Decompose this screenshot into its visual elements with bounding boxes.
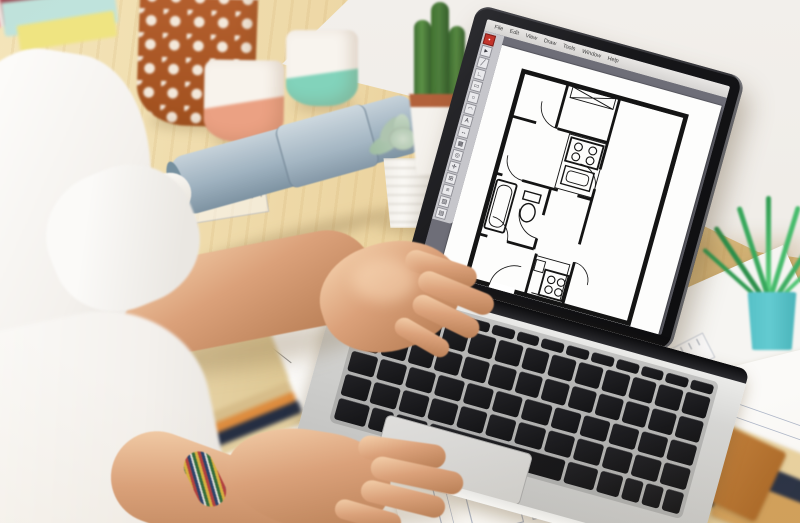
tool-glyph: ○ xyxy=(471,94,476,101)
keyboard-key xyxy=(521,347,551,375)
cactus-stem xyxy=(414,20,431,106)
keyboard-key xyxy=(340,374,372,402)
keyboard-key xyxy=(485,414,517,442)
keyboard-key xyxy=(550,406,582,434)
keyboard-key xyxy=(405,366,437,394)
keyboard-key xyxy=(456,406,488,434)
keyboard-key xyxy=(621,400,651,428)
keyboard-key xyxy=(630,454,662,482)
keyboard-key xyxy=(572,438,604,466)
keyboard-key xyxy=(579,414,611,442)
keyboard-key xyxy=(398,390,430,418)
keyboard-key xyxy=(347,350,379,378)
keyboard-key xyxy=(648,408,678,436)
keyboard-key xyxy=(514,371,544,399)
windows xyxy=(467,69,688,315)
cactus-stem xyxy=(431,2,449,106)
keyboard-key xyxy=(514,422,546,450)
menu-item[interactable]: File xyxy=(494,24,504,32)
keyboard-key xyxy=(487,363,517,391)
keyboard-key xyxy=(621,477,644,503)
keyboard-key xyxy=(547,354,577,382)
workspace-photo: FileEditViewDrawToolsWindowHelp ▪ ► ╱ ∟ … xyxy=(0,0,800,523)
tool-glyph: ∟ xyxy=(476,71,483,78)
kitchen-upper xyxy=(555,134,607,198)
keyboard-key xyxy=(492,390,524,418)
tool-glyph: ↔ xyxy=(460,129,467,136)
plant-blade xyxy=(766,196,771,296)
tool-glyph: ▪ xyxy=(487,37,491,43)
menu-item[interactable]: Edit xyxy=(509,29,520,37)
tool-glyph: ◠ xyxy=(467,106,474,113)
keyboard-key xyxy=(637,430,669,458)
keyboard-key xyxy=(628,376,658,404)
mint-dip-cup xyxy=(286,30,358,106)
tool-glyph: ► xyxy=(482,48,489,55)
keyboard-key xyxy=(494,339,524,367)
keyboard-key xyxy=(369,382,401,410)
keyboard-key xyxy=(541,378,571,406)
tool-glyph: ▦ xyxy=(457,140,464,147)
keyboard-key xyxy=(568,385,598,413)
tool-glyph: ╱ xyxy=(480,60,485,67)
tool-glyph: ✛ xyxy=(451,163,457,170)
tool-glyph: ⊞ xyxy=(448,175,454,182)
keyboard-key xyxy=(594,393,624,421)
keyboard-key xyxy=(601,369,631,397)
keyboard-key xyxy=(427,398,459,426)
tool-glyph: A xyxy=(464,117,469,124)
menu-item[interactable]: Draw xyxy=(543,38,557,47)
keyboard-key xyxy=(596,471,624,498)
keyboard-key xyxy=(543,430,575,458)
door-arcs xyxy=(473,96,631,310)
teal-plant-pot xyxy=(746,292,798,350)
keyboard-key xyxy=(681,391,711,419)
print-tool-icon[interactable]: ▤ xyxy=(434,207,448,221)
keyboard-key xyxy=(608,422,640,450)
keyboard-key xyxy=(641,483,664,509)
keyboard-key xyxy=(601,446,633,474)
tool-glyph: ▨ xyxy=(441,198,448,205)
tool-glyph: ≡ xyxy=(445,187,450,194)
keyboard-key xyxy=(334,398,370,427)
keyboard-key xyxy=(461,356,491,384)
keyboard-key xyxy=(661,489,684,515)
keyboard-key xyxy=(521,398,553,426)
keyboard-key xyxy=(675,415,705,443)
hand-highlight xyxy=(352,258,416,302)
keyboard-key xyxy=(376,358,408,386)
keyboard-key xyxy=(434,374,466,402)
menu-item[interactable]: Help xyxy=(607,56,620,65)
tool-glyph: ▤ xyxy=(438,210,445,217)
tool-glyph: ◎ xyxy=(454,152,461,159)
keyboard-key xyxy=(463,382,495,410)
keyboard-key xyxy=(654,384,684,412)
keyboard-key xyxy=(574,361,604,389)
keyboard-key xyxy=(563,461,599,490)
keyboard-key xyxy=(666,438,698,466)
green-plant xyxy=(734,188,800,353)
menu-item[interactable]: View xyxy=(525,33,538,42)
tool-glyph: ▭ xyxy=(473,82,480,89)
plant-blades xyxy=(734,188,800,300)
keyboard-key xyxy=(659,462,691,490)
menu-item[interactable]: Tools xyxy=(562,43,576,52)
